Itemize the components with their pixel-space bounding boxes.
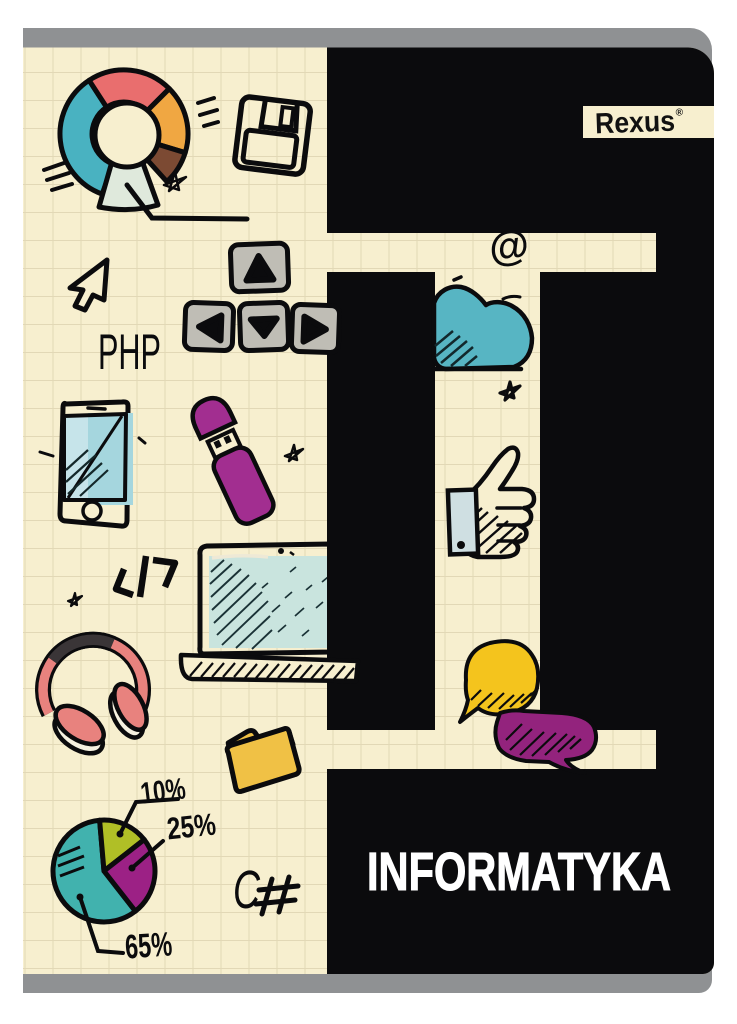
svg-text:INFORMATYKA: INFORMATYKA bbox=[367, 843, 671, 902]
svg-text:PHP: PHP bbox=[98, 324, 161, 380]
svg-text:Rexus: Rexus bbox=[595, 106, 676, 141]
svg-text:10%: 10% bbox=[139, 772, 188, 810]
svg-text:65%: 65% bbox=[124, 925, 174, 966]
svg-text:@: @ bbox=[487, 221, 532, 271]
svg-text:®: ® bbox=[676, 107, 684, 118]
svg-text:25%: 25% bbox=[165, 806, 217, 846]
